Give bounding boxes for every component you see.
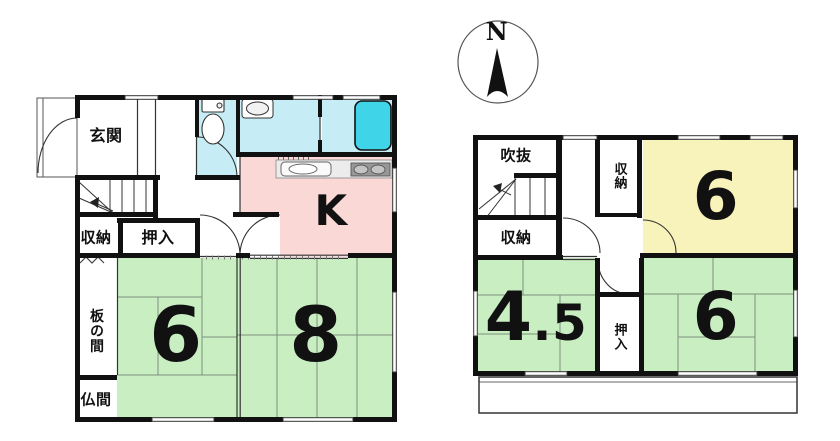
pocket-door-arc [598,260,629,294]
toilet-icon [202,99,224,144]
stairs-first-floor [79,178,146,213]
kitchen-counter [276,160,392,178]
second-floor-plan [473,135,798,413]
room-label-altar-room: 仏間 [80,393,111,408]
room-label-storage-1f: 収納 [80,231,111,246]
stove-icon [351,163,390,176]
room-size-tatami45-whole: 4 [485,284,533,352]
room-size-tatami8-1f: 8 [289,297,342,373]
room-label-wood-floor-room: 板の間 [89,309,103,354]
compass-north-label: N [486,20,508,44]
room-label-atrium: 吹抜 [500,149,531,164]
stairs-second-floor [479,178,545,218]
room-size-tatami6-1f: 6 [149,297,202,373]
floorplan-canvas: N 玄関 収納 押入 板の間 仏間 K 6 8 吹抜 収納 収納 6 4 .5 … [0,0,840,441]
entrance-door-arc [38,118,77,173]
sink-icon [242,99,273,118]
balcony [479,377,797,413]
room-size-tatami45-2f: 4 .5 [485,284,588,352]
thin-partitions-2f [557,137,597,260]
hall-door-arc-2f [563,218,600,253]
entrance-porch [37,98,77,177]
room-label-storage-2f-left: 収納 [500,231,531,246]
hall-door-arc-right [240,215,280,255]
hall-door-arc-left [200,215,240,255]
room-label-closet-2f: 押入 [613,323,626,351]
room-label-entrance: 玄関 [89,128,122,144]
room-size-tatami6-2f: 6 [693,284,739,350]
stairs-down-arrow-icon [90,197,99,208]
room-size-western6-2f: 6 [693,164,739,230]
kitchen-sink-icon [281,162,331,176]
room-label-kitchen: K [314,190,347,232]
room-label-storage-2f-center: 収納 [613,162,626,190]
room-size-tatami45-fraction: .5 [533,298,588,348]
room-label-closet-1f: 押入 [141,230,174,246]
bathtub-icon [355,101,391,150]
